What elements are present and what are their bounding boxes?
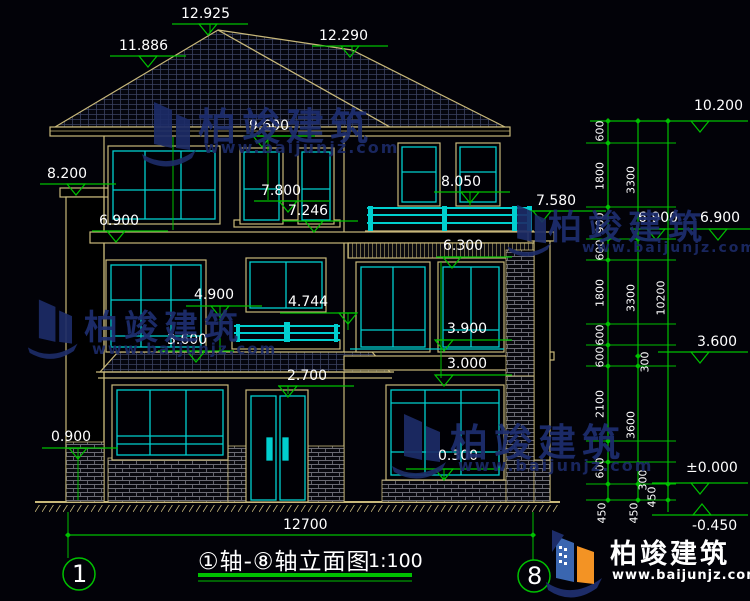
dim-label: 3600 <box>625 411 638 439</box>
elevation-label: 12.925 <box>181 7 230 22</box>
elevation-label: 11.886 <box>119 39 168 54</box>
watermark-site: www.baijunjz.com <box>204 138 399 157</box>
axis-number-left: 1 <box>72 560 87 588</box>
door-handle-right <box>283 438 288 460</box>
dim-label: 1800 <box>594 162 607 190</box>
elevation-drawing: 12.925 11.886 12.290 10.200 9.600 8.200 … <box>0 0 750 601</box>
watermark-site: www.baijunjz.com <box>582 240 750 256</box>
dim-label: 450 <box>646 487 659 508</box>
watermark-site: www.baijunjz.com <box>92 340 277 358</box>
elevation-label: 2.700 <box>287 369 327 384</box>
dim-label: 450 <box>596 503 609 524</box>
dim-label: 3300 <box>625 284 638 312</box>
ground-hatch <box>35 505 560 512</box>
axis-number-right: 8 <box>527 562 542 590</box>
dim-label: 10200 <box>655 281 668 316</box>
watermark-site: www.baijunjz.com <box>458 456 653 475</box>
left-column-cap <box>60 188 110 197</box>
dim-label: 600 <box>594 121 607 142</box>
elevation-label: 7.800 <box>261 184 301 199</box>
dim-label: 450 <box>628 503 641 524</box>
elevation-label: 0.900 <box>51 430 91 445</box>
elevation-label: 6.900 <box>99 214 139 229</box>
elevation-label: 7.246 <box>288 204 328 219</box>
elevation-label: 3.000 <box>447 357 487 372</box>
dim-label: 300 <box>639 352 652 373</box>
elevation-label: 8.050 <box>441 175 481 190</box>
elevation-label: 3.600 <box>697 335 737 350</box>
elevation-label: 12.290 <box>319 29 368 44</box>
elevation-label: 4.744 <box>288 295 328 310</box>
dim-label: 600 <box>594 347 607 368</box>
dim-label: 3300 <box>625 166 638 194</box>
dim-label: 600 <box>594 325 607 346</box>
logo-site-text: www.baijunjz.com <box>612 568 750 583</box>
elevation-label: ±0.000 <box>686 461 738 476</box>
elevation-label: 10.200 <box>694 99 743 114</box>
drawing-title: ①轴-⑧轴立面图 <box>198 542 371 576</box>
logo-brand-text: 柏竣建筑 <box>610 532 730 571</box>
drawing-scale: 1:100 <box>368 550 423 572</box>
overall-width-label: 12700 <box>283 517 328 533</box>
door-handle-left <box>267 438 272 460</box>
brand-logo-icon <box>546 530 602 598</box>
balcony-railing <box>234 322 340 342</box>
terrace-railing <box>367 206 532 231</box>
elevation-label: 8.200 <box>47 167 87 182</box>
elevation-label: 3.900 <box>447 322 487 337</box>
elevation-label: 6.300 <box>443 239 483 254</box>
dim-label: 1800 <box>594 279 607 307</box>
